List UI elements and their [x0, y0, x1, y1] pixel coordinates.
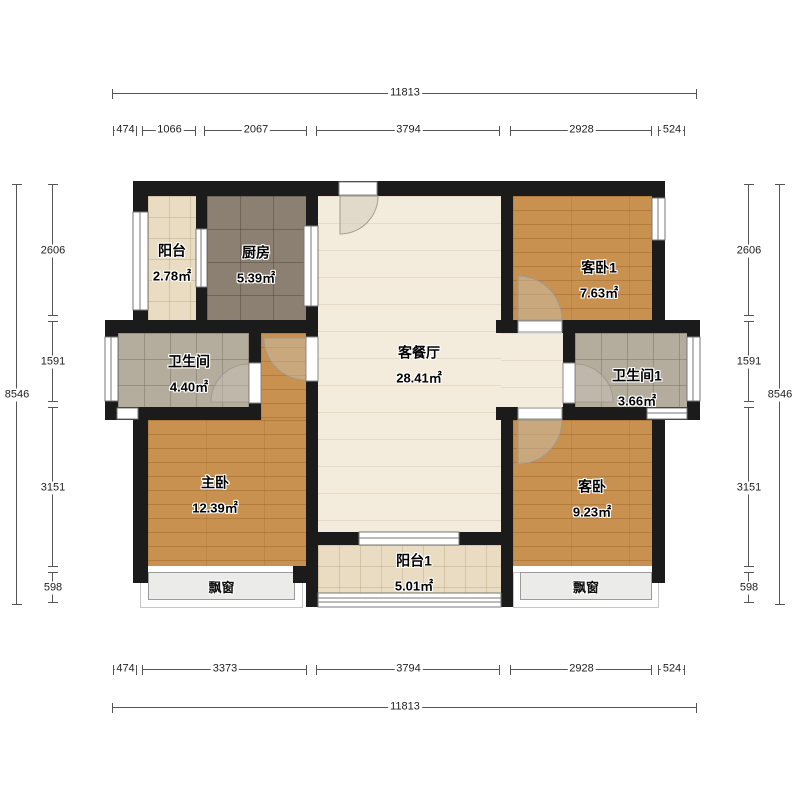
dim-top-seg-0: 474	[114, 130, 137, 131]
dim-top-seg-2: 2067	[205, 130, 307, 131]
dim-left-seg-2: 3151	[52, 408, 53, 567]
wall-bath-right	[249, 333, 261, 407]
room-area: 7.63㎡	[580, 283, 618, 302]
dim-top-total: 11813	[113, 93, 697, 94]
room-name: 卫生间	[168, 354, 210, 369]
wall-balcony-kitchen	[196, 196, 207, 320]
dim-bottom-seg-4: 524	[659, 669, 685, 670]
dim-left-seg-3: 598	[52, 573, 53, 603]
dim-left-seg-0: 2606	[52, 185, 53, 316]
wall-left-lower	[133, 420, 148, 566]
room-name: 厨房	[237, 245, 275, 260]
floor-master-entry	[261, 333, 306, 423]
room-name: 主卧	[192, 475, 238, 490]
room-label-balcony1: 阳台1 5.01㎡	[395, 553, 433, 594]
wall-mid-left	[105, 320, 318, 333]
floor-hallway	[501, 333, 563, 407]
wall-right-bedroom1	[652, 196, 665, 320]
room-area: 3.66㎡	[612, 391, 662, 410]
door-bedroom1	[518, 321, 562, 332]
room-name: 客卧1	[580, 260, 618, 275]
room-name: 卫生间1	[612, 368, 662, 383]
dim-top-seg-5: 524	[659, 130, 685, 131]
wall-kitchen-living	[306, 196, 318, 320]
room-area: 4.40㎡	[168, 377, 210, 396]
dim-bottom-seg-1: 3373	[143, 669, 307, 670]
room-area: 28.41㎡	[396, 368, 442, 387]
dim-left-total: 8546	[16, 185, 17, 605]
dim-bottom-seg-3: 2928	[511, 669, 652, 670]
wall-living-balcony1	[306, 532, 513, 545]
wall-mid-right	[562, 320, 700, 333]
dim-right-seg-0: 2606	[748, 185, 749, 316]
room-name: 客卧	[573, 479, 611, 494]
room-label-balcony: 阳台 2.78㎡	[153, 243, 191, 284]
wall-hall-bottom-stub	[496, 407, 518, 420]
wall-bath1-left	[563, 333, 575, 407]
bay-window-right: 飘窗	[520, 572, 652, 600]
room-label-bath1: 卫生间1 3.66㎡	[612, 368, 662, 409]
room-label-bedroom1: 客卧1 7.63㎡	[580, 260, 618, 301]
wall-bath1-outer	[687, 320, 700, 420]
dim-bottom-total: 11813	[113, 707, 697, 708]
room-label-living: 客餐厅 28.41㎡	[396, 345, 442, 386]
wall-left-upper	[133, 196, 148, 320]
room-name: 阳台1	[395, 553, 433, 568]
dim-top-seg-3: 3794	[317, 130, 500, 131]
dim-right-seg-3: 598	[748, 573, 749, 603]
window-balcony1-bottom	[318, 593, 501, 607]
room-area: 5.01㎡	[395, 576, 433, 595]
wall-right-lower	[652, 420, 665, 583]
wall-bay-post-left	[133, 566, 148, 583]
room-name: 客餐厅	[396, 345, 442, 360]
room-area: 2.78㎡	[153, 266, 191, 285]
room-area: 12.39㎡	[192, 498, 238, 517]
bay-window-right-label: 飘窗	[573, 577, 599, 596]
room-label-master: 主卧 12.39㎡	[192, 475, 238, 516]
dim-top-seg-4: 2928	[511, 130, 652, 131]
bay-window-left: 飘窗	[148, 572, 295, 600]
wall-hall-top-stub	[496, 320, 518, 333]
room-area: 9.23㎡	[573, 502, 611, 521]
bay-window-left-label: 飘窗	[208, 577, 234, 596]
room-label-bath: 卫生间 4.40㎡	[168, 354, 210, 395]
wall-bath-bottom	[105, 407, 261, 420]
dim-bottom-seg-0: 474	[114, 669, 137, 670]
dim-right-seg-2: 3151	[748, 408, 749, 567]
wall-balcony1-left	[306, 545, 318, 607]
door-bedroom2	[518, 408, 562, 419]
wall-living-bedroom2	[501, 420, 513, 607]
wall-living-bedroom1	[501, 196, 513, 320]
dim-right-seg-1: 1591	[748, 322, 749, 402]
room-area: 5.39㎡	[237, 268, 275, 287]
room-label-kitchen: 厨房 5.39㎡	[237, 245, 275, 286]
wall-top	[133, 181, 665, 196]
room-label-bedroom2: 客卧 9.23㎡	[573, 479, 611, 520]
dim-bottom-seg-2: 3794	[317, 669, 500, 670]
dim-right-total: 8546	[779, 185, 780, 605]
room-name: 阳台	[153, 243, 191, 258]
dim-left-seg-1: 1591	[52, 322, 53, 402]
floor-plan: 飘窗 飘窗	[0, 0, 800, 800]
dim-top-seg-1: 1066	[143, 130, 196, 131]
